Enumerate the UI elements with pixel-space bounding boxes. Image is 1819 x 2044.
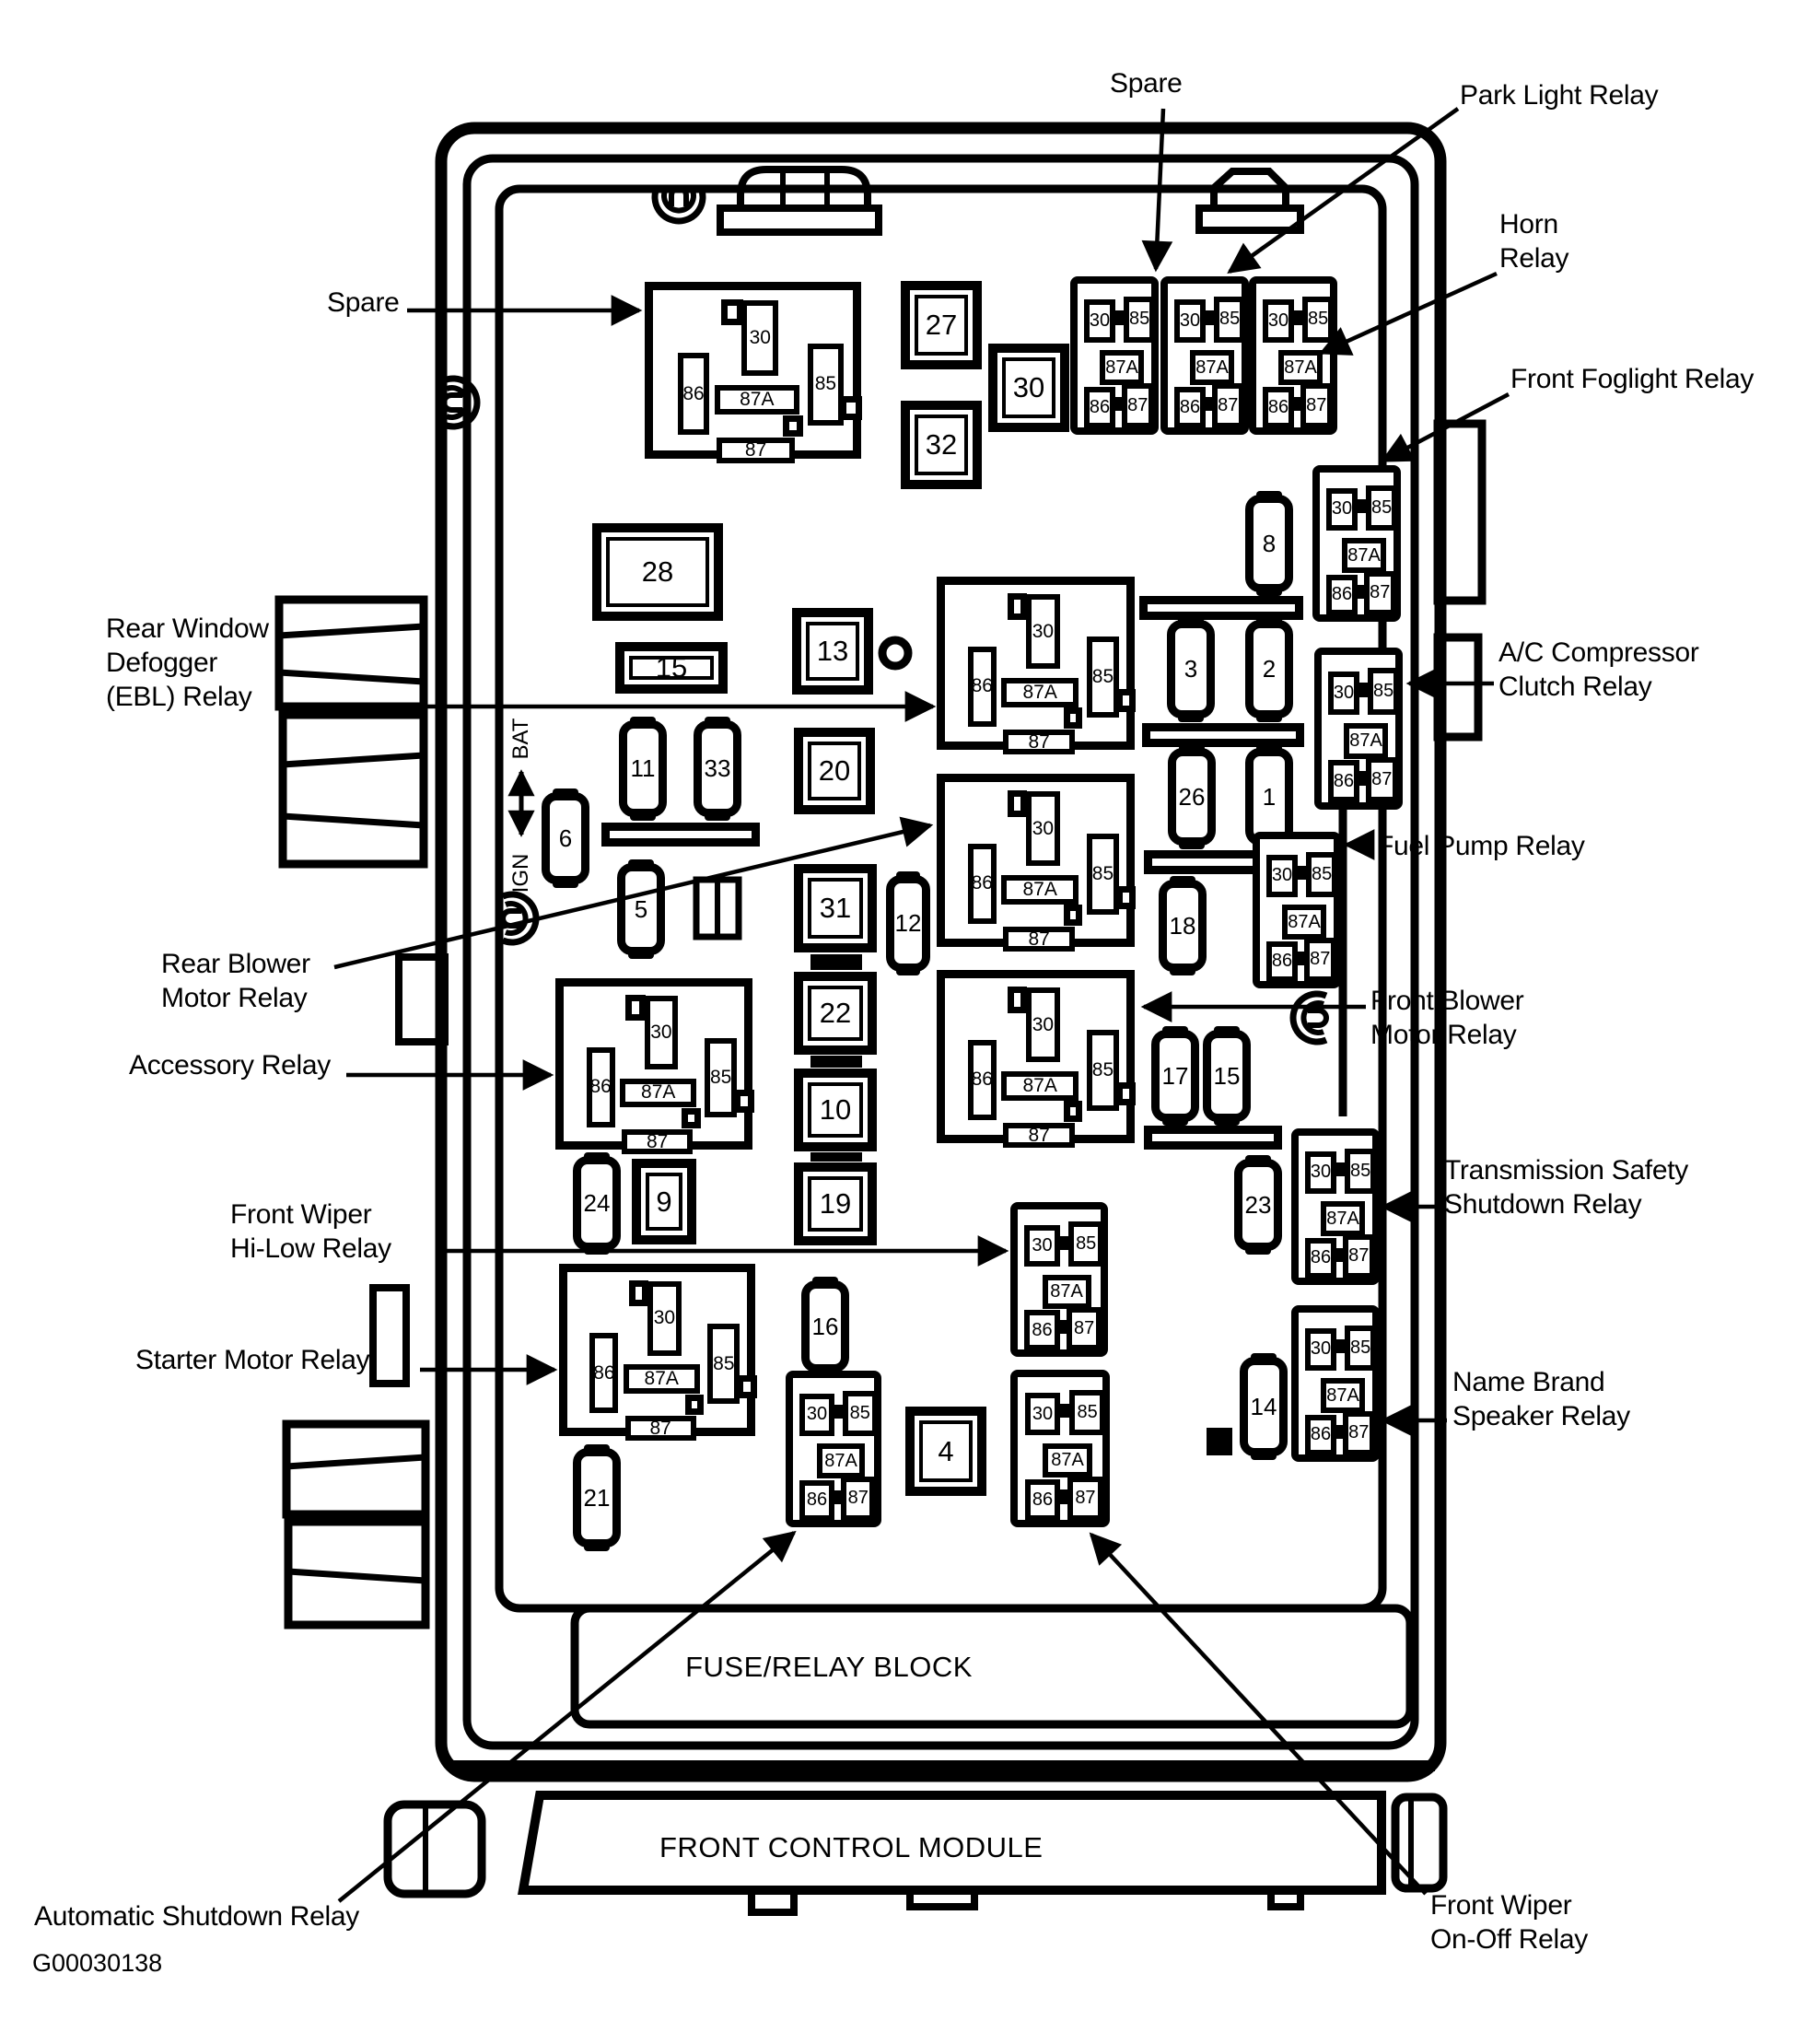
pin-label: 87: [1310, 949, 1330, 970]
pin-label: 85: [1350, 1337, 1370, 1359]
relay-pin-87: 87: [1003, 927, 1074, 952]
fuse-clip-top: [1251, 1353, 1277, 1365]
fuse-number: 33: [705, 754, 731, 783]
fuse-mini-23: 23: [1234, 1159, 1282, 1251]
pin-label: 87A: [1051, 1450, 1084, 1471]
relay-pin-87a: 87A: [1043, 1443, 1092, 1478]
relay-pin-87a: 87A: [1100, 350, 1144, 385]
callout-ac-compressor-clutch-relay: A/C CompressorClutch Relay: [1498, 636, 1699, 704]
pin-label: 30: [807, 1404, 827, 1425]
relay-pin-85: 85: [1124, 297, 1156, 343]
relay-contact: [682, 1108, 700, 1128]
fuse-clip-top: [553, 788, 579, 800]
front-wiper-hi-low-relay: 308587A8687: [1010, 1202, 1108, 1357]
relay-pin-30: 30: [1024, 1225, 1059, 1267]
pin-label: 86: [1334, 771, 1354, 792]
fuse-28: 28: [592, 523, 723, 621]
relay-notch: [1008, 593, 1028, 619]
pin-label: 87A: [1023, 1075, 1057, 1097]
fuse-mini-33: 33: [694, 720, 741, 817]
relay-pin-85: 85: [1069, 1390, 1105, 1436]
relay-pin-86: 86: [1024, 1310, 1059, 1350]
pin-label: 87A: [824, 1451, 857, 1472]
relay-pin-85: 85: [1068, 1221, 1103, 1267]
relay-contact: [1116, 689, 1137, 712]
fuse-mini-11: 11: [619, 720, 667, 817]
relay-contact: [1116, 1082, 1137, 1105]
fuse-mini-8: 8: [1245, 495, 1293, 592]
fuse-32: 32: [901, 401, 982, 489]
callout-line: A/C Compressor: [1498, 636, 1699, 670]
relay-nub: [1298, 952, 1306, 965]
fuse-number: 11: [631, 754, 656, 783]
relay-pin-87a: 87A: [1278, 350, 1323, 385]
pin-label: 86: [972, 1069, 993, 1091]
fuse-number: 30: [1013, 371, 1044, 404]
callout-line: Transmission Safety: [1444, 1153, 1688, 1187]
relay-pin-30: 30: [1263, 299, 1295, 342]
fuse-number: 32: [926, 428, 957, 461]
pin-label: 86: [589, 1076, 611, 1098]
relay-pin-30: 30: [1328, 672, 1360, 716]
callout-line: Spare: [1110, 66, 1183, 100]
fuse-mini-16: 16: [801, 1280, 849, 1372]
front-control-module-label: FRONT CONTROL MODULE: [659, 1831, 1043, 1864]
relay-pin-85: 85: [1306, 852, 1338, 897]
relay-pin-85: 85: [1087, 637, 1119, 717]
fuse-clip-bottom: [1245, 1243, 1272, 1255]
pin-label: 85: [1092, 666, 1114, 688]
relay-pin-87: 87: [1003, 1123, 1074, 1148]
callout-line: Front Wiper: [1430, 1888, 1588, 1922]
fuse-clip-bottom: [628, 947, 655, 959]
fuse-mini-21: 21: [573, 1448, 621, 1548]
relay-nub: [1060, 1489, 1069, 1503]
relay-pin-85: 85: [843, 1391, 877, 1436]
pin-label: 30: [1268, 310, 1288, 332]
fuse-number: 14: [1251, 1393, 1277, 1421]
relay-contact: [783, 415, 803, 437]
relay-notch: [1008, 790, 1028, 816]
pin-label: 87A: [1347, 545, 1381, 566]
callout-line: Motor Relay: [161, 981, 310, 1015]
bus-bar-2: [1139, 596, 1303, 620]
fuse-relay-block-label: FUSE/RELAY BLOCK: [608, 1651, 1050, 1684]
fuse-number: 17: [1162, 1062, 1189, 1091]
relay-contact: [840, 396, 862, 420]
relay-pin-87a: 87A: [1321, 1378, 1365, 1412]
relay-pin-30: 30: [1266, 855, 1299, 897]
relay-pin-86: 86: [1326, 575, 1358, 615]
pin-label: 87: [1028, 731, 1049, 753]
pin-label: 87A: [645, 1368, 679, 1390]
front-blower-motor-relay: 30868587A87: [937, 970, 1135, 1143]
callout-accessory-relay: Accessory Relay: [129, 1048, 331, 1082]
callout-horn-relay: HornRelay: [1499, 207, 1568, 275]
callout-line: Front Blower: [1370, 984, 1523, 1018]
fuse-number: 27: [926, 309, 957, 342]
fuse-number: 15: [1214, 1062, 1241, 1091]
pin-label: 85: [1373, 681, 1393, 702]
pin-label: 30: [650, 1022, 671, 1044]
pin-label: 87A: [740, 389, 774, 411]
pin-label: 85: [815, 373, 836, 395]
fuse-body: 19: [808, 1176, 863, 1232]
relay-pin-87a: 87A: [1321, 1201, 1365, 1235]
pin-label: 87A: [1349, 730, 1382, 752]
fuse-clip-bottom: [1256, 710, 1283, 722]
pin-label: 85: [1308, 309, 1328, 330]
relay-nub: [1298, 866, 1306, 880]
relay-pin-30: 30: [1026, 594, 1060, 669]
fuse-body: 27: [915, 295, 968, 356]
callout-transmission-safety-shutdown-relay: Transmission SafetyShutdown Relay: [1444, 1153, 1688, 1221]
relay-pin-86: 86: [968, 647, 997, 727]
pin-label: 86: [1272, 951, 1292, 972]
fuse-number: 13: [817, 635, 848, 668]
callout-rear-window-defogger-ebl-relay: Rear WindowDefogger(EBL) Relay: [106, 612, 269, 714]
callout-line: Motor Relay: [1370, 1018, 1523, 1052]
fuse-13: 13: [792, 608, 873, 695]
fuse-number: 21: [584, 1484, 611, 1513]
relay-nub: [1294, 397, 1302, 411]
transmission-safety-shutdown-relay: 308587A8687: [1291, 1128, 1380, 1285]
pin-label: 85: [710, 1067, 731, 1089]
callout-spare-top: Spare: [1110, 66, 1183, 100]
fuse-clip-bottom: [1251, 1448, 1277, 1460]
fuse-body: 10: [808, 1082, 863, 1138]
callout-line: Starter Motor Relay: [135, 1343, 369, 1377]
relay-nub: [1336, 1162, 1345, 1176]
callout-line: Shutdown Relay: [1444, 1187, 1688, 1221]
relay-notch: [721, 299, 743, 326]
fuse-number: 6: [559, 824, 572, 853]
relay-pin-30: 30: [645, 996, 678, 1069]
relay-nub: [1359, 683, 1368, 697]
pin-label: 87: [1028, 1125, 1049, 1147]
fuse-body: 15: [629, 656, 714, 680]
fuse-clip-top: [1256, 491, 1283, 503]
relay-nub: [1359, 771, 1368, 786]
fuse-clip-bottom: [705, 809, 731, 821]
callout-starter-motor-relay: Starter Motor Relay: [135, 1343, 369, 1377]
relay-pin-87a: 87A: [1001, 875, 1079, 905]
fuse-clip-top: [1170, 876, 1196, 888]
relay-nub: [1336, 1425, 1345, 1439]
pin-label: 87: [1370, 582, 1390, 603]
pin-label: 30: [1032, 1014, 1054, 1036]
callout-spare-left: Spare: [327, 286, 400, 320]
fuse-mini-6: 6: [542, 792, 589, 884]
pin-label: 87: [1306, 395, 1326, 416]
pin-label: 87A: [1105, 357, 1138, 379]
fuse-10: 10: [794, 1069, 877, 1151]
relay-pin-87a: 87A: [1043, 1275, 1091, 1309]
fuse-number: 24: [584, 1189, 611, 1218]
pin-label: 30: [1032, 621, 1054, 643]
pin-label: 85: [1092, 1059, 1114, 1081]
fuse-number: 10: [820, 1093, 851, 1127]
relay-pin-85: 85: [1345, 1149, 1377, 1194]
bat-label: BAT: [508, 716, 534, 762]
callout-front-foglight-relay: Front Foglight Relay: [1510, 362, 1754, 396]
relay-nub: [1060, 1320, 1069, 1334]
ac-compressor-clutch-relay: 308587A8687: [1314, 648, 1403, 810]
fuse-clip-bottom: [1170, 964, 1196, 975]
bus-bar-5: [1144, 1126, 1282, 1150]
relay-pin-85: 85: [1087, 834, 1119, 914]
fuse-number: 12: [895, 909, 922, 938]
fuse-body: 9: [646, 1173, 682, 1231]
fuse-body: 22: [808, 986, 863, 1041]
pin-label: 87A: [1326, 1385, 1359, 1407]
fuse-number: 15: [656, 651, 687, 684]
pin-label: 30: [1311, 1162, 1331, 1183]
pin-label: 86: [972, 872, 993, 894]
pin-label: 87A: [1288, 912, 1321, 933]
spare-relay-large: 30868587A87: [645, 282, 861, 459]
relay-pin-85: 85: [1214, 297, 1246, 343]
relay-pin-87a: 87A: [1282, 905, 1326, 939]
pin-label: 87: [1028, 929, 1049, 951]
relay-pin-87: 87: [1003, 730, 1074, 754]
fuse-number: 1: [1263, 783, 1276, 812]
relay-pin-87a: 87A: [1342, 538, 1386, 572]
pin-label: 87: [848, 1488, 869, 1509]
fuse-mini-26: 26: [1168, 748, 1216, 846]
pin-label: 86: [1032, 1320, 1052, 1341]
pin-label: 86: [1268, 397, 1288, 418]
pin-label: 86: [1311, 1424, 1331, 1445]
pin-label: 87: [1371, 769, 1392, 790]
pin-label: 30: [1032, 1235, 1052, 1256]
callout-line: Name Brand: [1452, 1365, 1630, 1399]
pin-label: 87A: [1284, 357, 1317, 379]
callout-line: Fuel Pump Relay: [1377, 829, 1585, 863]
pin-label: 85: [1129, 309, 1149, 330]
fuse-30: 30: [988, 344, 1069, 432]
relay-pin-86: 86: [968, 1040, 997, 1120]
relay-pin-30: 30: [1026, 791, 1060, 866]
rear-blower-motor-relay: 30868587A87: [937, 774, 1135, 947]
relay-pin-86: 86: [1174, 387, 1207, 428]
relay-pin-87: 87: [1067, 1307, 1102, 1350]
fuse-number: 9: [656, 1186, 671, 1219]
relay-pin-87: 87: [1366, 757, 1398, 802]
relay-pin-30: 30: [1026, 987, 1060, 1062]
spare-relay-micro: 308587A8687: [1070, 276, 1159, 435]
relay-pin-87: 87: [1122, 383, 1154, 427]
fuse-relay-block-diagram: 2732302815132031221019941133658322611817…: [0, 0, 1819, 2044]
fuse-4: 4: [905, 1407, 986, 1496]
fuse-mini-24: 24: [573, 1156, 621, 1251]
name-brand-speaker-relay: 308587A8687: [1291, 1305, 1380, 1462]
relay-contact: [1116, 886, 1137, 909]
fuse-number: 20: [819, 754, 850, 788]
relay-pin-86: 86: [1084, 387, 1116, 428]
callout-fuel-pump-relay: Fuel Pump Relay: [1377, 829, 1585, 863]
relay-contact: [1064, 1101, 1082, 1122]
pin-label: 87: [745, 439, 766, 461]
relay-pin-87a: 87A: [1001, 1071, 1079, 1101]
relay-nub: [1358, 499, 1366, 513]
fuse-number: 26: [1179, 783, 1206, 812]
pin-label: 86: [807, 1489, 827, 1511]
callout-line: Defogger: [106, 646, 269, 680]
fuse-27: 27: [901, 281, 982, 369]
pin-label: 87A: [1326, 1209, 1359, 1230]
pin-label: 87: [1218, 395, 1238, 416]
relay-notch: [1008, 987, 1028, 1012]
fuse-clip-top: [630, 717, 657, 729]
relay-pin-85: 85: [1302, 297, 1335, 343]
fuse-clip-bottom: [1162, 1114, 1189, 1126]
fuse-clip-bottom: [1214, 1114, 1241, 1126]
pin-label: 87: [649, 1418, 670, 1440]
fuse-number: 28: [642, 555, 673, 589]
figure-code: G00030138: [32, 1949, 162, 1978]
relay-pin-87: 87: [1343, 1234, 1375, 1279]
relay-nub: [1115, 310, 1124, 324]
pin-label: 86: [593, 1362, 614, 1384]
relay-contact: [737, 1375, 756, 1398]
fuse-body: 30: [1002, 357, 1055, 418]
relay-nub: [1336, 1339, 1345, 1353]
relay-contact: [734, 1090, 753, 1113]
relay-pin-85: 85: [1345, 1326, 1377, 1371]
park-light-relay: 308587A8687: [1160, 276, 1249, 435]
fuse-mini-18: 18: [1159, 880, 1207, 972]
fuse-clip-top: [896, 871, 919, 883]
pin-label: 87A: [1023, 879, 1057, 901]
relay-nub: [1206, 397, 1214, 411]
relay-pin-87: 87: [841, 1477, 875, 1521]
pin-label: 87A: [1050, 1281, 1083, 1302]
callout-line: Front Wiper: [230, 1197, 391, 1232]
relay-pin-87: 87: [1364, 571, 1396, 615]
fuse-number: 5: [635, 895, 647, 924]
fuse-20: 20: [794, 728, 875, 814]
fuse-number: 8: [1263, 530, 1276, 558]
callout-line: Front Foglight Relay: [1510, 362, 1754, 396]
relay-pin-87: 87: [1343, 1411, 1375, 1455]
fuse-mini-3: 3: [1167, 620, 1215, 718]
callout-line: Park Light Relay: [1460, 78, 1658, 112]
ign-label: IGN: [508, 850, 534, 896]
relay-pin-87: 87: [622, 1129, 693, 1154]
starter-motor-relay: 30868587A87: [559, 1264, 755, 1436]
relay-nub: [1115, 397, 1124, 411]
fuse-clip-bottom: [1256, 584, 1283, 596]
relay-pin-87a: 87A: [624, 1364, 700, 1394]
callout-line: Rear Window: [106, 612, 269, 646]
pin-label: 85: [1371, 497, 1392, 519]
relay-pin-86: 86: [587, 1047, 615, 1127]
fuse-clip-top: [1245, 1155, 1272, 1167]
relay-contact: [1064, 707, 1082, 729]
callout-front-blower-motor-relay: Front BlowerMotor Relay: [1370, 984, 1523, 1052]
relay-pin-85: 85: [705, 1038, 737, 1117]
automatic-shutdown-relay: 308587A8687: [786, 1371, 881, 1527]
relay-pin-85: 85: [1368, 668, 1400, 715]
relay-pin-30: 30: [1025, 1393, 1061, 1435]
pin-label: 87A: [641, 1081, 675, 1104]
pin-label: 30: [654, 1307, 675, 1329]
relay-pin-87: 87: [717, 438, 795, 463]
fuse-body: 20: [808, 742, 861, 800]
fuse-clip-bottom: [630, 809, 657, 821]
front-wiper-on-off-relay: 308587A8687: [1010, 1370, 1110, 1527]
fuse-number: 23: [1245, 1191, 1272, 1220]
relay-pin-86: 86: [678, 353, 709, 435]
pin-label: 87: [1074, 1318, 1094, 1339]
relay-pin-86: 86: [1305, 1415, 1337, 1455]
relay-pin-87a: 87A: [817, 1443, 865, 1478]
pin-label: 30: [1272, 865, 1292, 886]
relay-pin-87a: 87A: [1190, 350, 1234, 385]
pin-label: 86: [1332, 584, 1352, 605]
fuse-number: 19: [820, 1187, 851, 1221]
pin-label: 86: [1311, 1247, 1331, 1268]
fuse-mini-5: 5: [617, 863, 665, 955]
pin-label: 87: [1127, 395, 1148, 416]
relay-pin-87a: 87A: [1344, 723, 1388, 759]
pin-label: 85: [850, 1403, 870, 1424]
relay-pin-87: 87: [1067, 1477, 1103, 1521]
relay-pin-87a: 87A: [1001, 678, 1079, 707]
pin-label: 87: [1348, 1245, 1369, 1267]
pin-label: 30: [1180, 310, 1200, 332]
relay-notch: [629, 1280, 648, 1306]
fuse-number: 31: [820, 892, 851, 925]
pin-label: 87: [647, 1131, 668, 1153]
callout-park-light-relay: Park Light Relay: [1460, 78, 1658, 112]
relay-nub: [1206, 310, 1214, 324]
fuse-9: 9: [632, 1159, 696, 1244]
pin-label: 30: [1332, 498, 1352, 520]
fuse-number: 22: [820, 997, 851, 1030]
accessory-relay: 30868587A87: [555, 978, 752, 1150]
pin-label: 87A: [1195, 357, 1229, 379]
fuse-clip-top: [1214, 1026, 1241, 1038]
callout-line: Speaker Relay: [1452, 1399, 1630, 1433]
relay-pin-86: 86: [1328, 760, 1360, 802]
relay-pin-86: 86: [968, 844, 997, 924]
pin-label: 85: [713, 1353, 734, 1375]
fuse-mini-14: 14: [1240, 1357, 1288, 1456]
pin-label: 85: [1219, 309, 1240, 330]
fuse-clip-bottom: [1179, 837, 1206, 849]
pin-label: 30: [1032, 1404, 1053, 1425]
relay-pin-30: 30: [1084, 299, 1116, 342]
fuse-15: 15: [615, 642, 728, 694]
relay-notch: [625, 995, 645, 1021]
callout-line: Spare: [327, 286, 400, 320]
components-layer: 2732302815132031221019941133658322611817…: [0, 0, 1819, 2044]
fuse-clip-bottom: [584, 1243, 611, 1255]
callout-line: On-Off Relay: [1430, 1922, 1588, 1956]
fuse-19: 19: [794, 1162, 877, 1245]
relay-pin-30: 30: [1174, 299, 1207, 342]
pin-label: 86: [1180, 397, 1200, 418]
relay-pin-86: 86: [589, 1333, 618, 1413]
callout-line: (EBL) Relay: [106, 680, 269, 714]
pin-label: 30: [1090, 310, 1110, 332]
relay-pin-86: 86: [1025, 1479, 1061, 1520]
callout-line: Automatic Shutdown Relay: [34, 1899, 359, 1933]
fuse-mini-12: 12: [886, 875, 930, 972]
relay-pin-86: 86: [799, 1480, 834, 1521]
